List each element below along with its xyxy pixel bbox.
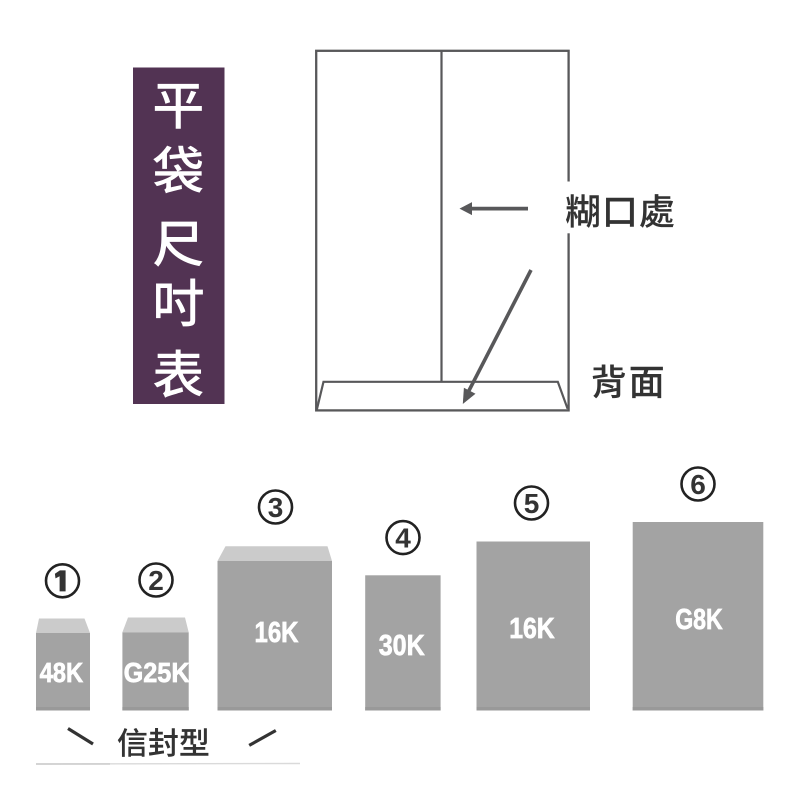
svg-text:6: 6 <box>690 469 706 500</box>
svg-text:G25K: G25K <box>124 657 190 688</box>
svg-text:3: 3 <box>268 492 284 523</box>
svg-text:48K: 48K <box>40 657 84 688</box>
svg-text:30K: 30K <box>379 630 425 662</box>
svg-text:16K: 16K <box>255 617 299 649</box>
svg-text:G8K: G8K <box>675 604 723 636</box>
svg-text:4: 4 <box>395 523 411 554</box>
svg-text:16K: 16K <box>509 613 555 645</box>
svg-text:2: 2 <box>148 565 164 596</box>
svg-text:5: 5 <box>524 488 540 519</box>
